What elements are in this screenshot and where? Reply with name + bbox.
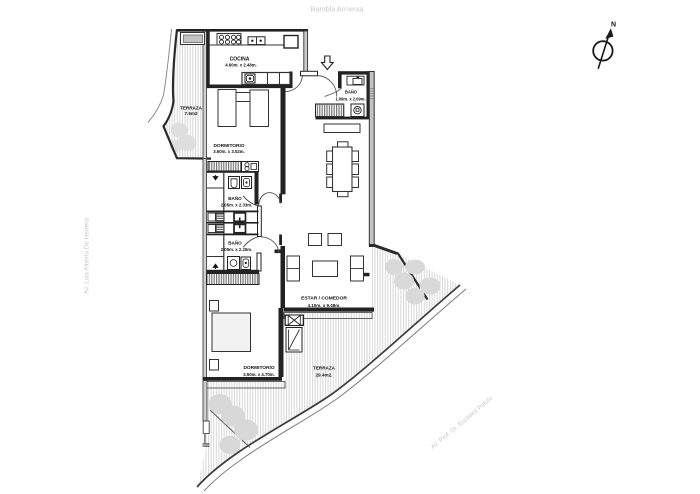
- svg-text:BAÑO: BAÑO: [228, 240, 242, 246]
- svg-text:TERRAZA: TERRAZA: [180, 106, 203, 111]
- svg-text:4.10m. x 9.48m.: 4.10m. x 9.48m.: [307, 303, 340, 308]
- svg-text:29.4m2.: 29.4m2.: [316, 373, 333, 378]
- svg-text:Av. Luis Alberto De Herrera: Av. Luis Alberto De Herrera: [84, 217, 91, 294]
- svg-text:TERRAZA: TERRAZA: [313, 366, 336, 371]
- svg-text:DORMITORIO: DORMITORIO: [243, 365, 274, 371]
- svg-text:7.6m2: 7.6m2: [184, 111, 197, 116]
- svg-text:2.05m. x 2.33m.: 2.05m. x 2.33m.: [221, 203, 253, 208]
- svg-text:3.60m. x 3.52m.: 3.60m. x 3.52m.: [213, 149, 245, 154]
- svg-text:ESTAR / COMEDOR: ESTAR / COMEDOR: [301, 296, 347, 302]
- svg-text:BAÑO: BAÑO: [345, 90, 358, 95]
- svg-text:2.05m. x 2.25m.: 2.05m. x 2.25m.: [221, 247, 253, 252]
- svg-text:BAÑO: BAÑO: [228, 195, 242, 201]
- svg-text:3.50m. x 4.70m.: 3.50m. x 4.70m.: [243, 372, 275, 377]
- svg-text:N: N: [611, 22, 616, 29]
- svg-text:1.09m. x 2.09m.: 1.09m. x 2.09m.: [335, 97, 365, 102]
- svg-text:4.60m. x 2.48m.: 4.60m. x 2.48m.: [225, 63, 257, 68]
- svg-text:Rambla Armenia: Rambla Armenia: [310, 5, 363, 14]
